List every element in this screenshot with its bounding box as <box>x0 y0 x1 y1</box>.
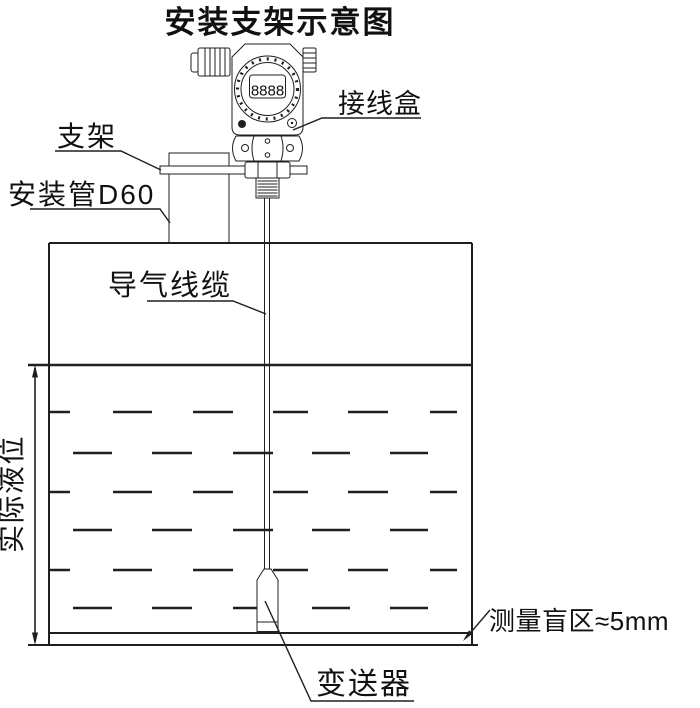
callout-junction-box: 接线盒 <box>293 89 422 130</box>
callout-transmitter: 变送器 <box>265 601 414 701</box>
bracket-label: 支架 <box>57 121 117 152</box>
callout-mounting-pipe: 安装管D60 <box>8 179 170 223</box>
air-cable-label: 导气线缆 <box>108 269 232 302</box>
liquid-dashes <box>49 412 457 608</box>
transmitter-label: 变送器 <box>316 668 412 701</box>
cable-gland <box>191 48 230 76</box>
lcd-display: 8888 <box>251 83 284 100</box>
junction-box-label: 接线盒 <box>338 89 422 119</box>
threaded-stem <box>256 178 279 198</box>
dimension-arrow-up <box>32 365 38 378</box>
callout-blind-zone: 测量盲区≈5mm <box>463 606 669 641</box>
bolt-left <box>238 120 246 128</box>
conduit-connector <box>303 48 316 72</box>
installation-bracket-diagram: 安装支架示意图 <box>0 0 700 708</box>
mounting-pipe-label: 安装管D60 <box>8 179 155 210</box>
callout-air-cable: 导气线缆 <box>108 269 266 314</box>
tank <box>28 243 478 645</box>
level-dimension: 实际液位 <box>0 365 38 645</box>
neck <box>233 136 303 161</box>
actual-level-label: 实际液位 <box>0 435 27 553</box>
hex-nut <box>245 162 290 178</box>
diagram-title: 安装支架示意图 <box>165 5 396 40</box>
blind-zone-label: 测量盲区≈5mm <box>489 606 669 636</box>
dimension-arrow-down <box>32 633 38 646</box>
transmitter-head: 8888 <box>191 44 316 198</box>
air-guide-cable <box>265 198 270 569</box>
callout-bracket: 支架 <box>55 121 161 170</box>
